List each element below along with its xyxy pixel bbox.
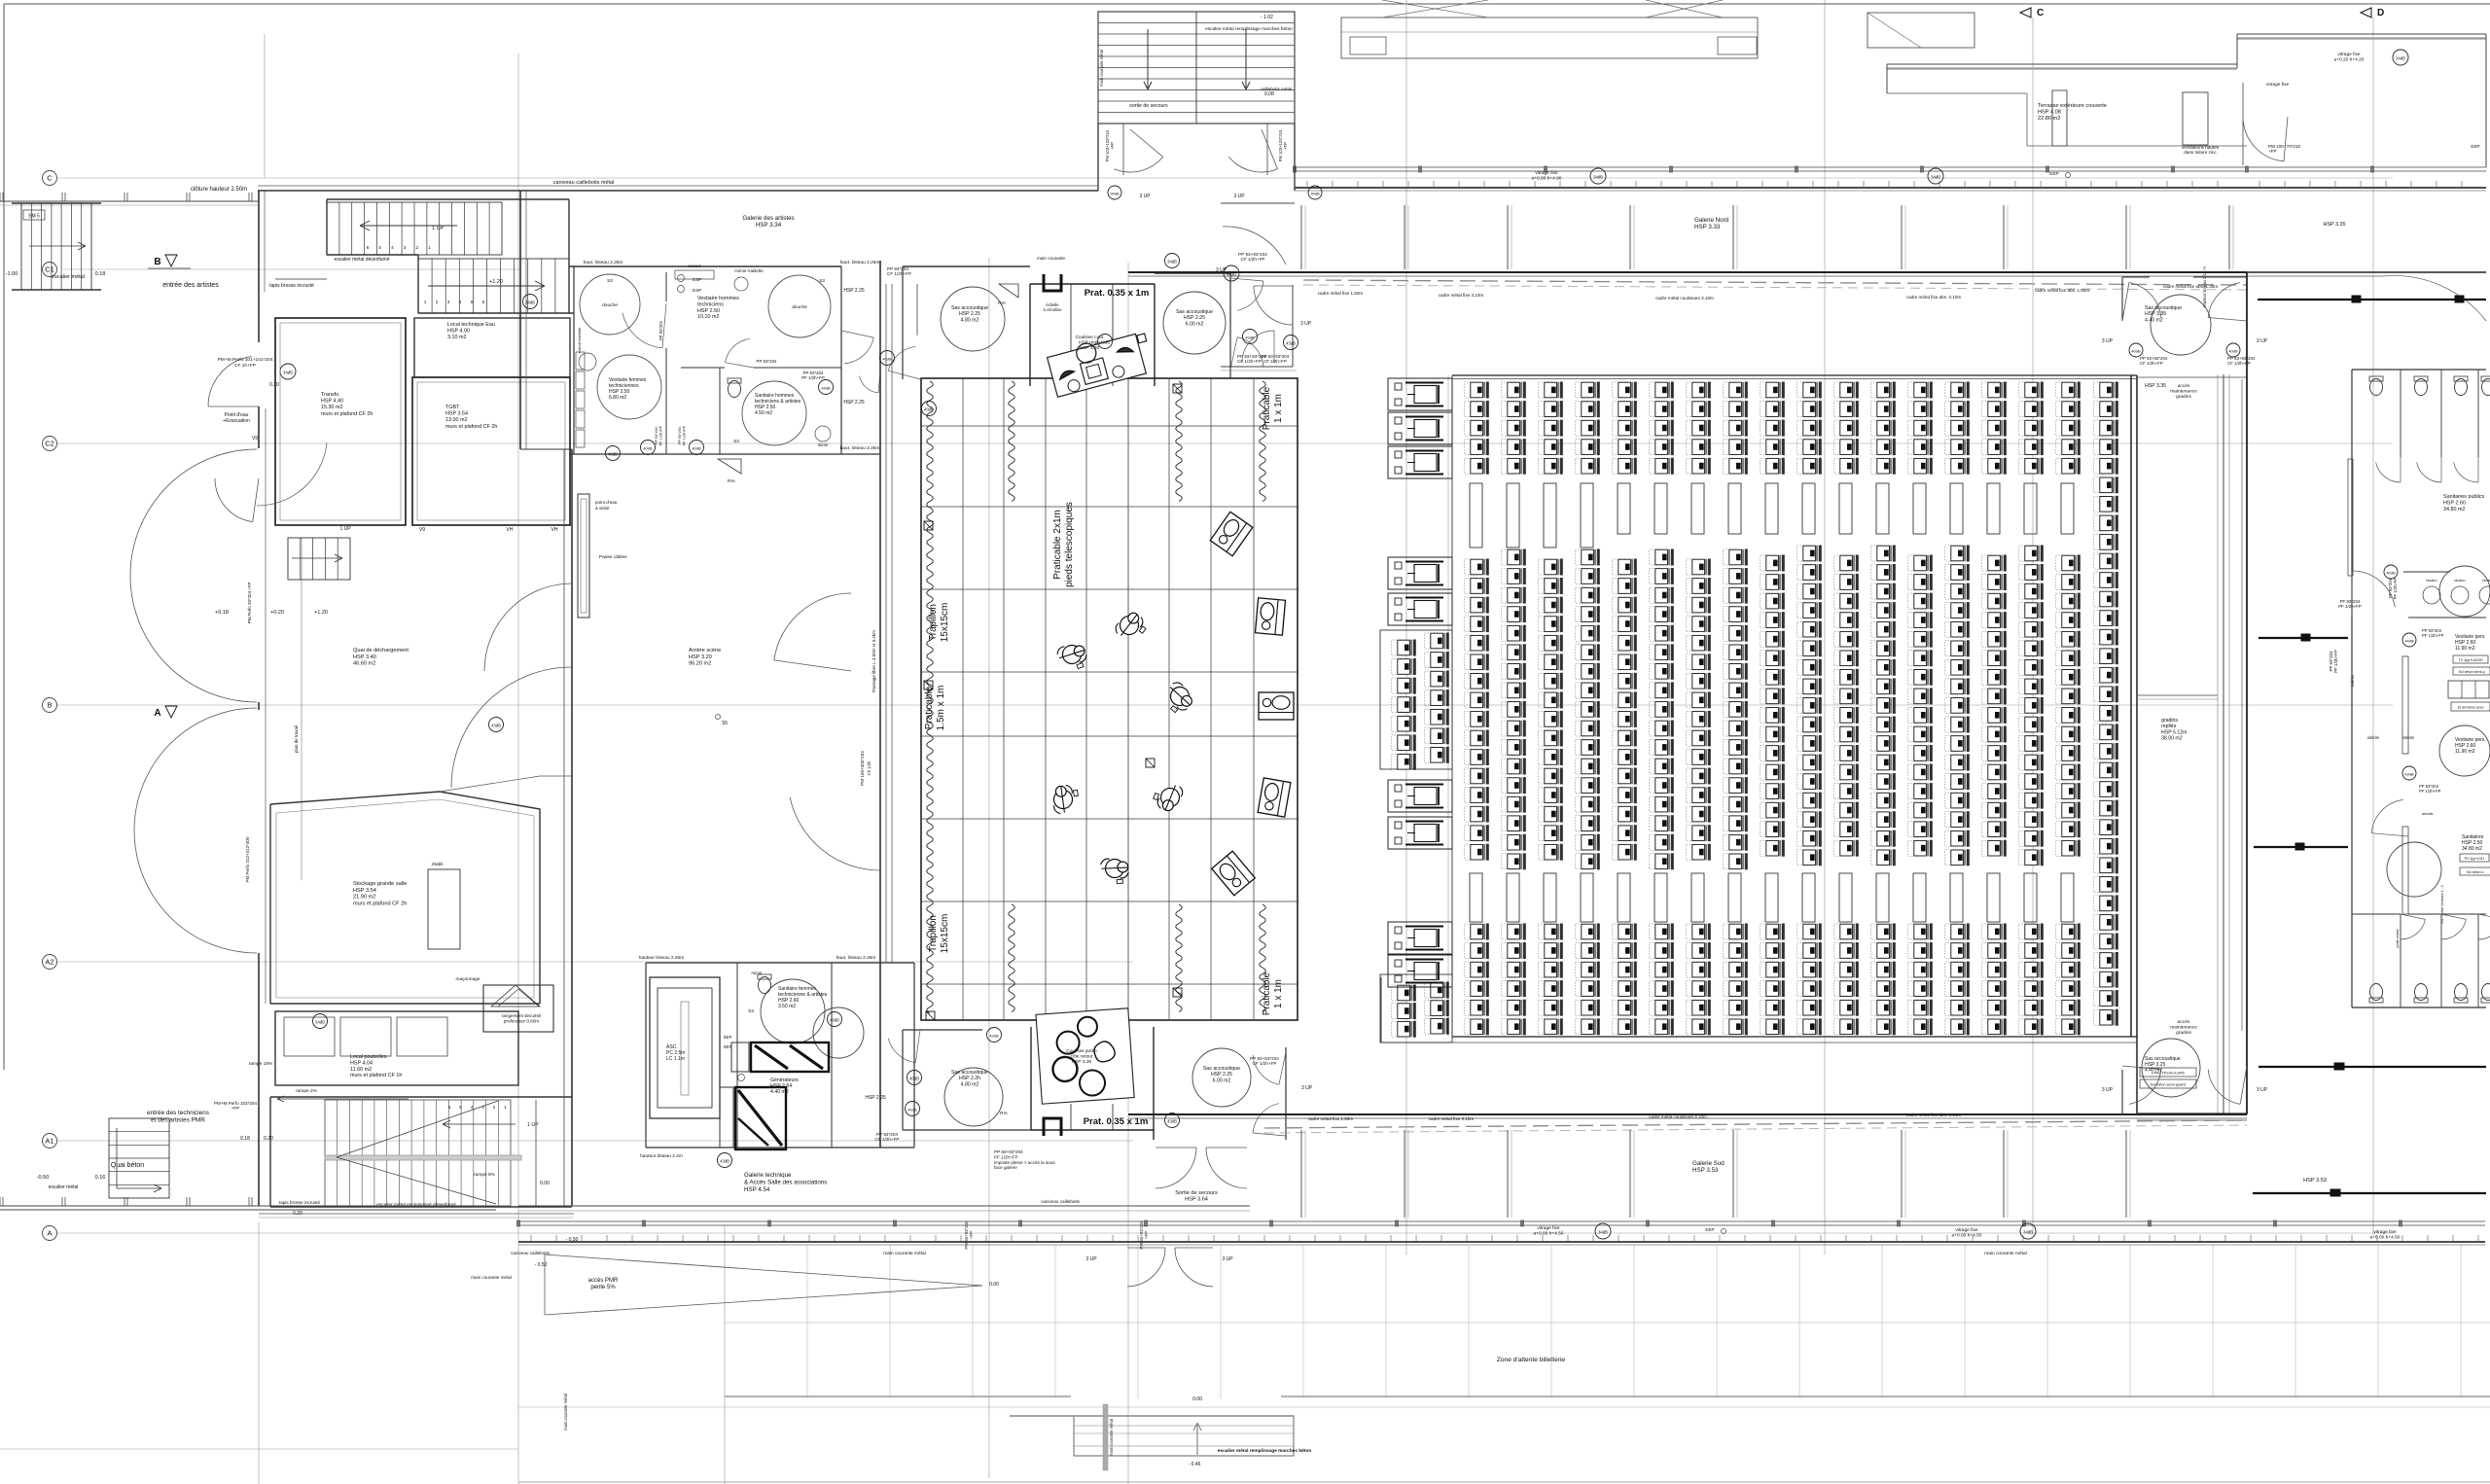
svg-text:Praticable 2x1m: Praticable 2x1m (1052, 510, 1063, 580)
svg-text:hauteur linteau 2.25m: hauteur linteau 2.25m (639, 955, 684, 961)
svg-text:PF 1/2h+FP: PF 1/2h+FP (994, 1154, 1018, 1159)
svg-text:& Accès Salle des associations: & Accès Salle des associations (744, 1179, 827, 1185)
svg-text:cadre métal coulissant 3.10m: cadre métal coulissant 3.10m (1655, 296, 1714, 300)
svg-text:3 UP: 3 UP (1085, 1256, 1097, 1262)
svg-text:escalier métal: escalier métal (49, 1184, 79, 1190)
svg-text:casiers: casiers (688, 264, 702, 268)
svg-text:cadre métal fixe abs. 1.35m: cadre métal fixe abs. 1.35m (2163, 284, 2219, 289)
svg-text:intérim: intérim (2350, 674, 2355, 687)
svg-text:HSP 3.30: HSP 3.30 (1080, 345, 1100, 351)
svg-text:PF 1/2h+FP: PF 1/2h+FP (2419, 789, 2441, 794)
svg-text:46.60 m2: 46.60 m2 (353, 661, 375, 667)
svg-text:escalier métal remplissage mar: escalier métal remplissage marches béton (1205, 26, 1293, 32)
svg-text:S3: S3 (748, 1008, 754, 1014)
svg-text:RIA: RIA (728, 478, 736, 484)
svg-text:cadre métal fixe abs. 1.65m: cadre métal fixe abs. 1.65m (2035, 288, 2090, 293)
svg-text:repliés: repliés (2161, 724, 2177, 729)
svg-text:profondeur 0.60m: profondeur 0.60m (504, 1018, 539, 1023)
svg-text:PF 1/2h+FP: PF 1/2h+FP (682, 425, 686, 445)
svg-text:SEP: SEP (724, 1035, 732, 1040)
svg-text:1 UP: 1 UP (432, 226, 445, 231)
svg-text:Quai de déchargement: Quai de déchargement (353, 648, 409, 654)
svg-text:2: 2 (493, 1105, 496, 1110)
svg-text:Galerie Sud: Galerie Sud (1692, 1160, 1725, 1167)
svg-text:3 UP: 3 UP (1233, 194, 1245, 199)
svg-text:11.60 m2: 11.60 m2 (350, 1067, 372, 1073)
svg-text:porte métal: porte métal (2396, 929, 2400, 947)
svg-text:HSP 3.53: HSP 3.53 (1692, 1167, 1719, 1174)
svg-text:PM+M.Perfo 101+101*204: PM+M.Perfo 101+101*204 (218, 357, 273, 363)
svg-text:HSP 4.54: HSP 4.54 (744, 1186, 770, 1193)
svg-text:40dB: 40dB (1100, 339, 1110, 344)
svg-text:40dB: 40dB (924, 406, 934, 411)
svg-text:arbotis: arbotis (2422, 812, 2433, 816)
svg-text:40dB: 40dB (909, 1076, 919, 1080)
svg-text:haut. linteau 2.25m: haut. linteau 2.25m (836, 955, 876, 961)
svg-text:HSP 2.2h: HSP 2.2h (959, 1076, 980, 1081)
svg-text:HSP 3.35: HSP 3.35 (2324, 222, 2346, 228)
svg-text:Trapillon: Trapillon (928, 604, 939, 641)
svg-text:- 0.50: - 0.50 (566, 1237, 579, 1243)
svg-text:S5: S5 (722, 721, 728, 726)
svg-text:Passage libre L 4.00m H 3.2km: Passage libre L 4.00m H 3.2km (871, 630, 876, 692)
svg-text:Point d'eau: Point d'eau (225, 412, 249, 418)
svg-text:43dB: 43dB (989, 1033, 999, 1038)
svg-text:TGBT: TGBT (445, 405, 460, 410)
svg-text:PF 1/2h+FP: PF 1/2h+FP (2422, 633, 2444, 638)
svg-text:HSP 5.12m: HSP 5.12m (2161, 729, 2187, 735)
svg-text:3: 3 (447, 300, 450, 304)
svg-text:4.50 m2: 4.50 m2 (755, 410, 772, 416)
svg-text:a+0.00 h+4.90: a+0.00 h+4.90 (1532, 175, 1562, 181)
svg-text:Galerie des artistes: Galerie des artistes (742, 215, 794, 222)
svg-text:rampe 2%: rampe 2% (296, 1088, 318, 1094)
svg-text:5: 5 (378, 245, 381, 250)
svg-text:S3: S3 (607, 278, 613, 284)
svg-text:cadre métal fixe 3.10m: cadre métal fixe 3.10m (1439, 293, 1484, 298)
svg-text:+1.20: +1.20 (314, 610, 328, 616)
svg-text:6: 6 (367, 245, 370, 250)
svg-text:murs et plafond CF 2h: murs et plafond CF 2h (321, 411, 373, 417)
svg-text:PP 83+83*204: PP 83+83*204 (994, 1149, 1023, 1154)
svg-text:40dB: 40dB (2228, 349, 2238, 354)
svg-text:HSP 3.35: HSP 3.35 (2145, 311, 2166, 317)
svg-text:40dB: 40dB (882, 356, 892, 361)
svg-text:SEP: SEP (724, 1044, 732, 1049)
svg-text:96.20 m2: 96.20 m2 (689, 661, 711, 667)
svg-text:43dB: 43dB (491, 723, 501, 727)
svg-text:Praticable: Praticable (1262, 972, 1272, 1015)
svg-text:Sas accoustique: Sas accoustique (2145, 305, 2182, 311)
svg-text:face galerie: face galerie (994, 1165, 1017, 1170)
svg-text:2: 2 (436, 300, 439, 304)
svg-text:mirroir+tablette: mirroir+tablette (577, 327, 582, 354)
svg-text:cadre métal fixe 1.50m: cadre métal fixe 1.50m (1308, 1116, 1354, 1121)
svg-text:escalier métal remplissage mar: escalier métal remplissage marches béton (1218, 1448, 1312, 1454)
svg-text:RIA: RIA (1000, 1111, 1009, 1115)
svg-text:1 UP: 1 UP (527, 1122, 539, 1128)
svg-text:0.00: 0.00 (540, 1181, 550, 1186)
svg-text:CF 1/2h+FP: CF 1/2h+FP (1237, 359, 1262, 364)
svg-text:vitrage fixe: vitrage fixe (2337, 52, 2361, 57)
svg-text:Passe câbles: Passe câbles (599, 554, 627, 560)
svg-text:Sortie de secours: Sortie de secours (1175, 1190, 1218, 1196)
svg-text:10.10 m2: 10.10 m2 (697, 314, 719, 320)
svg-text:imposte pleine > accès la sous: imposte pleine > accès la sous (994, 1160, 1055, 1165)
svg-text:A: A (47, 1229, 52, 1238)
svg-text:HSP 4.40: HSP 4.40 (321, 399, 343, 405)
svg-text:Praticable: Praticable (1262, 386, 1272, 430)
svg-text:CF 1/2h+FP: CF 1/2h+FP (1253, 1061, 1277, 1066)
svg-text:ESP: ESP (693, 277, 701, 282)
svg-text:44dB: 44dB (1227, 272, 1236, 277)
svg-text:3: 3 (481, 1105, 484, 1110)
svg-text:vitrage fixe: vitrage fixe (1535, 170, 1558, 176)
svg-text:Sol béton semi-quartz: Sol béton semi-quartz (2151, 1083, 2187, 1087)
svg-text:gradins: gradins (2176, 1030, 2191, 1036)
svg-text:A: A (154, 708, 160, 719)
svg-text:4: 4 (391, 245, 394, 250)
svg-text:6: 6 (448, 1105, 451, 1110)
svg-text:caniveau caillebotis: caniveau caillebotis (511, 1251, 551, 1255)
svg-text:43dB: 43dB (2404, 772, 2414, 777)
svg-text:main courante métal: main courante métal (1109, 1419, 1114, 1456)
svg-text:3 UP: 3 UP (1301, 1085, 1313, 1091)
svg-text:40dB: 40dB (692, 445, 701, 450)
svg-text:murs et plafond CF 2h: murs et plafond CF 2h (445, 424, 497, 430)
svg-text:HSP 4.08: HSP 4.08 (2038, 110, 2061, 116)
svg-text:HSP 2.25: HSP 2.25 (1184, 315, 1205, 321)
svg-text:Local poubelles: Local poubelles (350, 1054, 387, 1060)
svg-text:B: B (47, 701, 52, 710)
svg-text:rangement sécurisé: rangement sécurisé (502, 1013, 542, 1018)
svg-text:2: 2 (416, 245, 419, 250)
svg-text:rampe 18%: rampe 18% (249, 1061, 273, 1067)
svg-text:HSP 2.25: HSP 2.25 (1211, 1072, 1232, 1078)
svg-text:LC 1.1m: LC 1.1m (666, 1056, 685, 1062)
svg-text:intérim: intérim (2402, 735, 2415, 740)
svg-text:6.80 m2: 6.80 m2 (609, 395, 626, 401)
svg-text:40dB: 40dB (2386, 571, 2396, 576)
svg-text:+0.20: +0.20 (270, 610, 284, 616)
svg-text:3 UP: 3 UP (1139, 194, 1151, 199)
svg-text:34.80 m2: 34.80 m2 (2462, 846, 2482, 852)
svg-text:15.30 m2: 15.30 m2 (321, 405, 342, 410)
svg-text:HSP 2.25: HSP 2.25 (959, 311, 980, 317)
svg-text:FPAV TPerfo+LM45: FPAV TPerfo+LM45 (2152, 1072, 2184, 1076)
svg-text:1: 1 (428, 245, 431, 250)
svg-text:EEP: EEP (1705, 1227, 1714, 1232)
svg-text:40dB: 40dB (830, 1017, 839, 1022)
svg-text:HSP 3.40: HSP 3.40 (353, 654, 376, 660)
svg-text:HSP régie: HSP régie (1079, 339, 1100, 345)
svg-text:miroir: miroir (818, 442, 829, 447)
svg-text:10 armoires avec: 10 armoires avec (2457, 706, 2484, 710)
svg-text:PP 93*204: PP 93*204 (655, 427, 658, 444)
svg-text:entrée des artistes: entrée des artistes (162, 282, 219, 289)
svg-text:CF 1/2h+FP: CF 1/2h+FP (1241, 257, 1265, 262)
svg-text:1 x 1m: 1 x 1m (1273, 394, 1284, 423)
svg-text:cadre métal fixe 3.10m: cadre métal fixe 3.10m (1429, 1116, 1475, 1121)
svg-text:main courante: main courante (1037, 256, 1066, 261)
svg-text:34.80 m2: 34.80 m2 (2443, 507, 2465, 512)
svg-text:HSP 3.30: HSP 3.30 (1072, 1059, 1092, 1065)
svg-text:haut. linteau 2.25m: haut. linteau 2.25m (840, 260, 880, 265)
svg-text:CF 1/2h+FP: CF 1/2h+FP (887, 271, 911, 276)
svg-text:HSP 4.04: HSP 4.04 (350, 1060, 373, 1066)
svg-text:D: D (2377, 8, 2384, 18)
svg-text:CF 1h+FP: CF 1h+FP (234, 363, 256, 369)
svg-text:Transfo.: Transfo. (321, 392, 340, 398)
svg-text:maçonnage: maçonnage (455, 977, 480, 982)
svg-text:S3: S3 (819, 278, 825, 284)
svg-text:Zone d'attente billetterie: Zone d'attente billetterie (1497, 1357, 1566, 1363)
svg-text:-0.50: -0.50 (37, 1175, 50, 1181)
svg-text:SM 5: SM 5 (28, 214, 40, 220)
svg-text:HSP 2.25: HSP 2.25 (843, 400, 865, 406)
svg-text:gradins: gradins (2161, 718, 2178, 724)
svg-text:34dB: 34dB (525, 300, 535, 304)
svg-text:VH: VH (507, 527, 514, 533)
svg-text:Galerie Nord: Galerie Nord (1694, 217, 1729, 224)
svg-text:34dB: 34dB (1110, 192, 1120, 196)
svg-text:main courante métal: main courante métal (1984, 1251, 2026, 1256)
svg-text:main courante métal: main courante métal (883, 1251, 925, 1256)
svg-text:1: 1 (424, 300, 427, 304)
svg-text:V9: V9 (252, 436, 258, 442)
svg-text:3 UP: 3 UP (2102, 338, 2114, 344)
svg-text:cadre métal fixe abs. 3.10m: cadre métal fixe abs. 3.10m (1906, 1113, 1962, 1117)
svg-text:+FP: +FP (969, 1231, 974, 1239)
svg-text:HSP 2.50: HSP 2.50 (697, 308, 720, 314)
svg-text:HSP 3.34: HSP 3.34 (756, 222, 782, 229)
svg-text:VH: VH (551, 527, 558, 533)
svg-text:6.00 m2: 6.00 m2 (1186, 321, 1204, 327)
svg-text:rampe 5%: rampe 5% (474, 1172, 496, 1178)
svg-text:- 0.50: - 0.50 (535, 1262, 548, 1268)
svg-text:HSP 4.00: HSP 4.00 (447, 329, 470, 335)
svg-text:caniveau caillebotis: caniveau caillebotis (1041, 1199, 1081, 1204)
svg-text:- 0.46: - 0.46 (1189, 1462, 1201, 1467)
svg-text:CF 1/2h+FP: CF 1/2h+FP (2227, 361, 2251, 366)
svg-text:à crinoline: à crinoline (1043, 307, 1062, 312)
svg-text:HSP 2.25: HSP 2.25 (843, 288, 865, 294)
svg-text:4.80 m2: 4.80 m2 (961, 317, 979, 323)
svg-text:PF 1/2h+FP: PF 1/2h+FP (801, 375, 825, 380)
svg-text:34dB: 34dB (1931, 175, 1940, 180)
svg-text:PM.Perfo 93*204 +FP: PM.Perfo 93*204 +FP (247, 583, 252, 624)
svg-text:PM.Perfo 312+312*400: PM.Perfo 312+312*400 (245, 836, 250, 882)
svg-text:accès: accès (2178, 383, 2190, 389)
svg-text:PF 1/2h+FP: PF 1/2h+FP (2338, 604, 2362, 609)
svg-text:dans toiture zinc: dans toiture zinc (2184, 150, 2217, 155)
svg-text:C: C (47, 174, 53, 183)
svg-text:4.40 m2: 4.40 m2 (2145, 317, 2163, 323)
svg-text:vitrage fixe: vitrage fixe (1537, 1225, 1560, 1231)
svg-text:PP 93*204: PP 93*204 (678, 427, 682, 444)
svg-text:38.00 m2: 38.00 m2 (2161, 736, 2183, 742)
svg-text:HSP 2.60: HSP 2.60 (2443, 500, 2466, 506)
svg-text:murs et plafond CF 2h: murs et plafond CF 2h (353, 901, 407, 906)
svg-text:plan de travail: plan de travail (294, 725, 299, 753)
svg-text:a+0.00 b+4.50: a+0.00 b+4.50 (2370, 1234, 2401, 1240)
svg-text:pente 5%: pente 5% (590, 1285, 616, 1290)
svg-text:lavabo: lavabo (2482, 579, 2490, 583)
svg-text:hauteur linteau 2.2m: hauteur linteau 2.2m (640, 1153, 683, 1159)
svg-text:Coulisse jardin: Coulisse jardin (1066, 1048, 1097, 1054)
svg-text:a+0.20 h+4.20: a+0.20 h+4.20 (2334, 56, 2365, 62)
svg-text:Stockage grande salle: Stockage grande salle (353, 881, 407, 887)
svg-text:techniciens: techniciens (697, 301, 724, 307)
svg-text:gradins: gradins (2176, 394, 2191, 400)
svg-text:-1.00: -1.00 (6, 271, 18, 277)
svg-text:PF 1/2h+FP: PF 1/2h+FP (658, 425, 662, 445)
svg-text:point d'eau: point d'eau (595, 500, 618, 505)
svg-text:6: 6 (482, 300, 485, 304)
svg-text:43dB: 43dB (1245, 335, 1255, 339)
svg-text:5: 5 (471, 300, 474, 304)
svg-text:15x15cm: 15x15cm (940, 603, 950, 643)
svg-text:C2: C2 (45, 440, 54, 448)
svg-text:43dB: 43dB (1286, 341, 1296, 346)
svg-text:43dB: 43dB (1167, 1118, 1177, 1123)
svg-text:4: 4 (471, 1105, 474, 1110)
svg-text:+FP: +FP (1283, 142, 1288, 150)
svg-text:34dB: 34dB (315, 1019, 325, 1024)
svg-text:Prat. 0.35 x 1m: Prat. 0.35 x 1m (1085, 288, 1150, 299)
svg-text:douche: douche (602, 302, 618, 308)
svg-text:PP 93*204: PP 93*204 (757, 359, 777, 364)
svg-text:0.00: 0.00 (989, 1282, 999, 1288)
svg-text:3 UP: 3 UP (2257, 338, 2268, 344)
svg-text:tapis brosse incrusté: tapis brosse incrusté (279, 1200, 321, 1205)
svg-text:TV 2pp+LM100: TV 2pp+LM100 (2459, 658, 2483, 662)
svg-text:1 x 1m: 1 x 1m (1273, 979, 1284, 1008)
svg-text:caniveau caillebotis métal: caniveau caillebotis métal (553, 180, 615, 186)
svg-text:lavabo: lavabo (2426, 579, 2437, 583)
svg-text:44dB: 44dB (2404, 639, 2414, 644)
svg-text:11.90 m2: 11.90 m2 (2455, 749, 2475, 755)
svg-text:Sanitaires publics: Sanitaires publics (2443, 494, 2485, 500)
svg-text:6.00 m2: 6.00 m2 (1213, 1078, 1231, 1083)
svg-text:40dB: 40dB (2131, 349, 2141, 354)
svg-text:34dB: 34dB (2023, 1230, 2033, 1235)
svg-text:Arrière scène: Arrière scène (689, 648, 721, 654)
svg-text:34dB: 34dB (1593, 175, 1603, 180)
svg-text:main courante métal: main courante métal (563, 1394, 568, 1431)
svg-text:5: 5 (459, 1105, 462, 1110)
svg-text:Praticable: Praticable (924, 686, 935, 729)
svg-text:côte retour: côte retour (1071, 1053, 1093, 1059)
svg-text:13.00 m2: 13.00 m2 (445, 417, 467, 423)
svg-text:43dB: 43dB (720, 1158, 729, 1163)
svg-text:22.80 m2: 22.80 m2 (2038, 116, 2060, 122)
svg-text:CF 1/2h: CF 1/2h (867, 760, 871, 776)
svg-text:Vestiaire hommes: Vestiaire hommes (697, 296, 739, 301)
svg-text:HSP 3.53: HSP 3.53 (2303, 1178, 2327, 1184)
svg-text:C1: C1 (45, 265, 54, 274)
svg-text:3 UP: 3 UP (2102, 1087, 2114, 1093)
svg-text:Sas accoustique: Sas accoustique (951, 305, 988, 311)
svg-text:11.90 m2: 11.90 m2 (2455, 646, 2475, 652)
svg-text:Sol béton s.: Sol béton s. (2467, 870, 2485, 874)
svg-text:0.20: 0.20 (264, 1136, 273, 1142)
svg-text:HSP 2.25: HSP 2.25 (865, 1095, 886, 1101)
svg-text:HSP 3.54: HSP 3.54 (353, 888, 376, 894)
svg-text:Terrasse extérieure couverte: Terrasse extérieure couverte (2038, 103, 2107, 109)
svg-text:cadre métal coulissant 3.10m: cadre métal coulissant 3.10m (1649, 1114, 1707, 1119)
svg-text:+FP: +FP (2268, 149, 2277, 154)
svg-text:1.5m x 1m: 1.5m x 1m (936, 686, 946, 731)
svg-text:Sas accoustique: Sas accoustique (1176, 309, 1213, 315)
svg-text:Sas accoustique: Sas accoustique (951, 1070, 988, 1076)
svg-text:miroir: miroir (752, 971, 764, 975)
svg-text:CF 1/2h+FP: CF 1/2h+FP (875, 1137, 900, 1142)
svg-text:maintenance: maintenance (2170, 389, 2197, 395)
svg-text:vitrage fixe: vitrage fixe (2373, 1229, 2397, 1235)
svg-text:HSP 3.54: HSP 3.54 (445, 411, 468, 417)
svg-text:0.18: 0.18 (240, 1136, 250, 1142)
svg-text:1 UP: 1 UP (339, 526, 351, 532)
svg-text:hauteur linteau 2.10 m: hauteur linteau 2.10 m (2202, 266, 2207, 307)
svg-text:A2: A2 (45, 958, 53, 967)
svg-text:haut. linteau 2.25m: haut. linteau 2.25m (840, 445, 880, 451)
svg-text:S3: S3 (733, 439, 739, 444)
svg-text:HSP 3.20: HSP 3.20 (689, 654, 712, 660)
svg-text:+0.18: +0.18 (215, 610, 229, 616)
svg-text:EEP: EEP (2049, 171, 2058, 176)
svg-text:escalier métal désenfumé: escalier métal désenfumé (335, 257, 390, 263)
svg-text:Sas accoustique: Sas accoustique (1203, 1066, 1240, 1072)
svg-text:34dB: 34dB (2396, 56, 2405, 61)
svg-text:vitrage fixe: vitrage fixe (1955, 1227, 1978, 1233)
svg-text:3.10 m2: 3.10 m2 (447, 335, 466, 340)
svg-text:accès PMR: accès PMR (588, 1278, 619, 1284)
svg-text:3 UP: 3 UP (1222, 1256, 1233, 1262)
svg-text:40dB: 40dB (907, 1107, 917, 1112)
svg-text:vitrage fixe: vitrage fixe (2266, 82, 2290, 88)
svg-text:0.00: 0.00 (1192, 1396, 1202, 1402)
svg-text:CF 1/2h+FP: CF 1/2h+FP (1263, 359, 1287, 364)
svg-text:+FP: +FP (1110, 142, 1115, 150)
svg-text:PV 2pp+LM1: PV 2pp+LM1 (2465, 857, 2484, 861)
svg-text:+Evacuation: +Evacuation (223, 418, 250, 424)
svg-text:intérim: intérim (2367, 735, 2380, 740)
svg-text:lavabo: lavabo (2454, 579, 2465, 583)
svg-text:4: 4 (459, 300, 462, 304)
svg-text:+1.20: +1.20 (489, 279, 503, 285)
svg-text:1: 1 (504, 1105, 507, 1110)
svg-text:main courante métal: main courante métal (1099, 50, 1104, 87)
svg-text:ESP: ESP (693, 288, 701, 293)
svg-text:PP 93*204: PP 93*204 (658, 320, 663, 340)
svg-text:sortie de secours: sortie de secours (1129, 103, 1168, 109)
svg-text:Local technique Eau: Local technique Eau (447, 322, 495, 328)
svg-text:caillebotis métal: caillebotis métal (1261, 87, 1293, 91)
svg-text:15x15cm: 15x15cm (940, 914, 950, 954)
svg-text:3 UP: 3 UP (2257, 1087, 2268, 1093)
svg-text:PF 1/2h+FP: PF 1/2h+FP (2333, 650, 2338, 673)
svg-text:0.16: 0.16 (95, 1175, 106, 1181)
svg-text:Sol béton semi-q: Sol béton semi-q (2459, 670, 2485, 674)
svg-text:tapis brosse incrusté: tapis brosse incrusté (269, 283, 314, 289)
svg-text:main courante métal: main courante métal (471, 1275, 512, 1280)
svg-text:pieds telescopiques: pieds telescopiques (1064, 502, 1075, 587)
svg-text:34dB: 34dB (283, 371, 293, 375)
svg-text:HSP 3.33: HSP 3.33 (1694, 224, 1721, 230)
svg-text:4.80 m2: 4.80 m2 (961, 1081, 979, 1087)
svg-text:34dB: 34dB (1167, 259, 1177, 264)
